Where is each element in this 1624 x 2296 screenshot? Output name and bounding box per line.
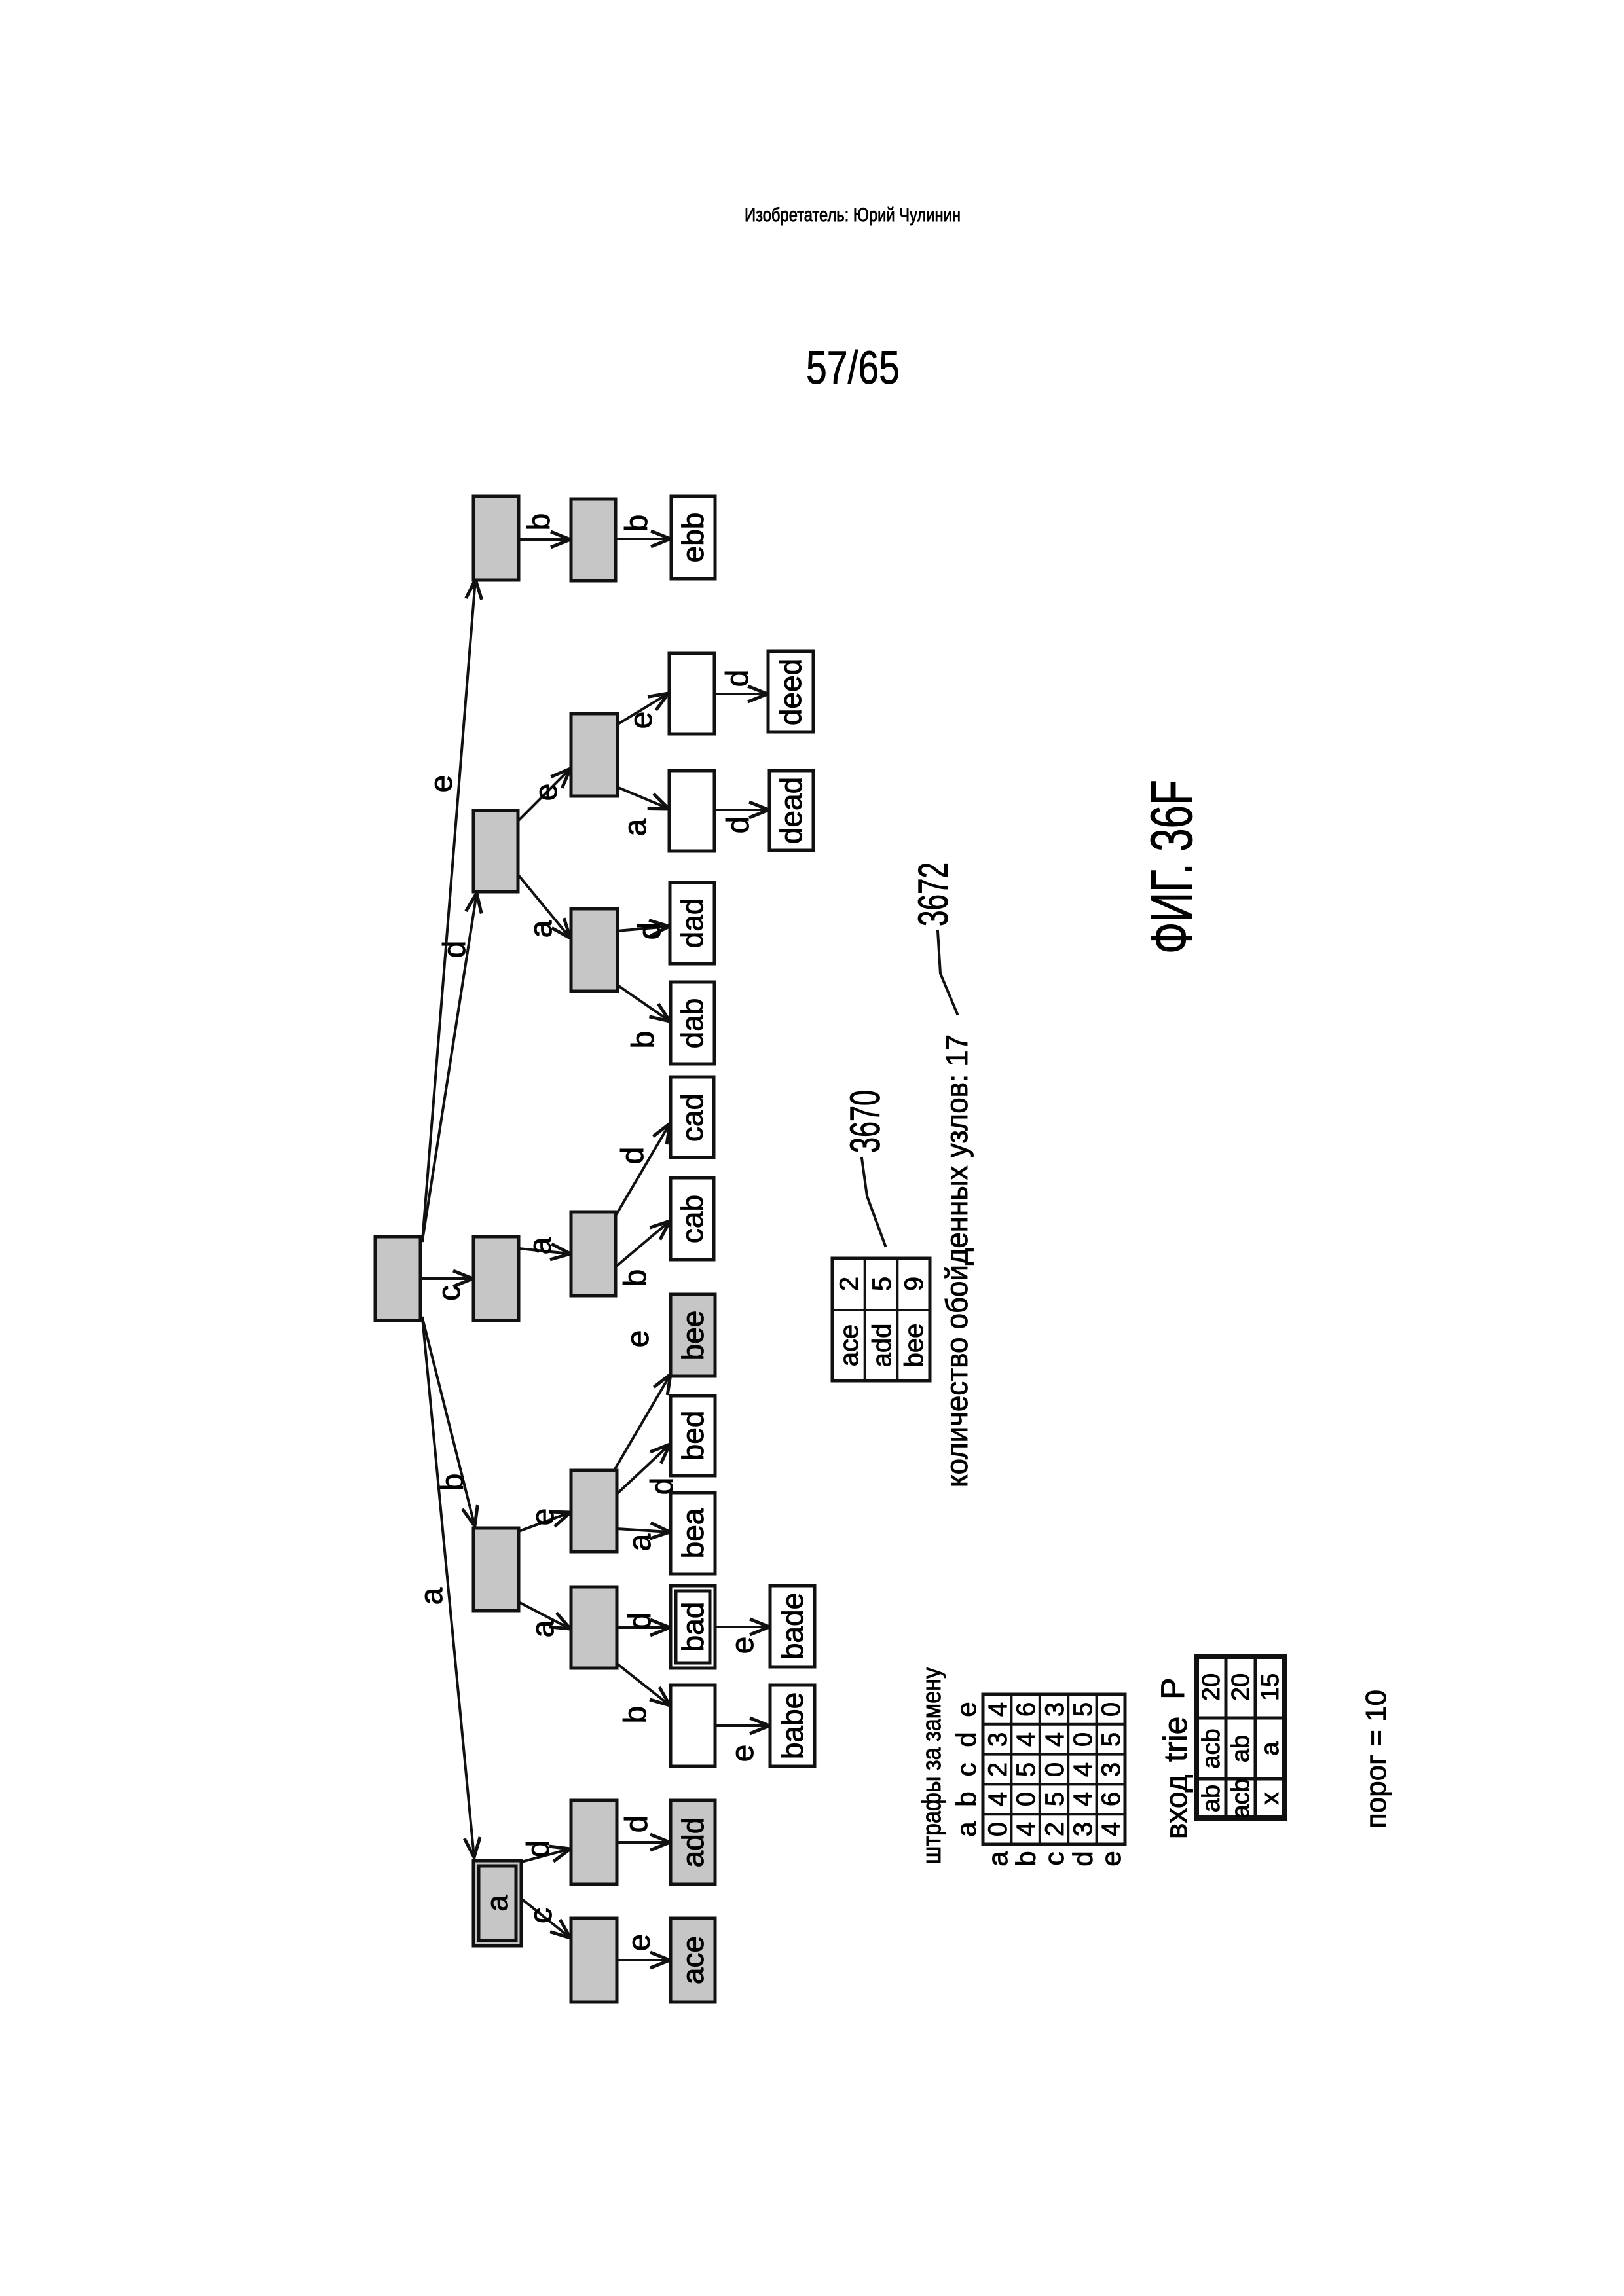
svg-text:trie: trie	[1157, 1717, 1194, 1762]
svg-text:d: d	[616, 1147, 650, 1165]
svg-text:bea: bea	[676, 1508, 710, 1558]
svg-text:0: 0	[984, 1822, 1012, 1836]
svg-text:0: 0	[1012, 1792, 1041, 1806]
svg-text:a: a	[618, 818, 653, 836]
svg-text:3: 3	[984, 1732, 1012, 1747]
svg-text:bed: bed	[676, 1411, 710, 1461]
svg-text:c: c	[1039, 1852, 1069, 1866]
svg-text:bee: bee	[900, 1324, 929, 1368]
svg-text:a: a	[982, 1851, 1013, 1867]
svg-text:ace: ace	[835, 1324, 864, 1367]
svg-text:x: x	[1257, 1793, 1284, 1805]
svg-text:d: d	[437, 941, 472, 958]
svg-text:e: e	[424, 775, 459, 793]
svg-text:4: 4	[1097, 1822, 1126, 1836]
svg-text:b: b	[618, 1269, 653, 1287]
svg-text:20: 20	[1227, 1673, 1255, 1701]
svg-text:a: a	[480, 1895, 514, 1912]
svg-text:ФИГ. 36F: ФИГ. 36F	[1139, 780, 1205, 954]
svg-text:2: 2	[1041, 1822, 1069, 1836]
svg-text:3: 3	[1097, 1762, 1126, 1777]
svg-text:0: 0	[1069, 1732, 1098, 1747]
svg-text:add: add	[868, 1324, 896, 1368]
svg-text:ebb: ebb	[676, 513, 710, 563]
svg-text:b: b	[619, 515, 654, 532]
svg-text:a: a	[951, 1821, 982, 1837]
svg-text:cad: cad	[675, 1093, 709, 1142]
svg-text:штрафы за замену: штрафы за замену	[917, 1667, 946, 1864]
svg-text:d: d	[720, 670, 755, 687]
svg-text:5: 5	[1012, 1762, 1041, 1777]
svg-text:4: 4	[984, 1792, 1012, 1806]
svg-text:c: c	[432, 1285, 467, 1301]
svg-text:e: e	[529, 784, 564, 801]
svg-text:количество обойденных узлов: 1: количество обойденных узлов: 17	[940, 1034, 974, 1487]
svg-text:0: 0	[1097, 1702, 1126, 1717]
svg-text:4: 4	[1069, 1792, 1098, 1806]
svg-text:e: e	[622, 1934, 657, 1952]
svg-text:3: 3	[1069, 1822, 1098, 1836]
svg-text:e: e	[624, 712, 659, 729]
svg-text:a: a	[415, 1587, 449, 1605]
svg-text:d: d	[1067, 1851, 1098, 1866]
svg-text:d: d	[721, 816, 756, 834]
svg-text:Изобретатель: Юрий Чулинин: Изобретатель: Юрий Чулинин	[745, 204, 961, 226]
svg-text:e: e	[526, 1508, 561, 1526]
svg-text:e: e	[1096, 1851, 1126, 1866]
svg-text:3670: 3670	[841, 1090, 889, 1153]
svg-text:e: e	[726, 1637, 760, 1654]
svg-text:b: b	[626, 1031, 661, 1049]
svg-text:c: c	[951, 1763, 982, 1777]
svg-text:cab: cab	[675, 1195, 709, 1243]
svg-text:d: d	[619, 1815, 654, 1833]
svg-text:0: 0	[1041, 1762, 1069, 1777]
svg-text:4: 4	[1012, 1822, 1041, 1836]
svg-text:d: d	[633, 922, 667, 940]
svg-text:b: b	[1010, 1851, 1041, 1866]
svg-text:d: d	[951, 1732, 982, 1747]
svg-text:e: e	[951, 1702, 982, 1717]
svg-text:bade: bade	[775, 1593, 809, 1660]
svg-text:5: 5	[1041, 1792, 1069, 1806]
svg-text:порог = 10: порог = 10	[1360, 1690, 1392, 1829]
svg-text:ace: ace	[676, 1936, 710, 1984]
svg-text:57/65: 57/65	[806, 342, 900, 394]
svg-text:4: 4	[1041, 1732, 1069, 1747]
svg-text:5: 5	[868, 1277, 896, 1291]
svg-text:dad: dad	[675, 898, 709, 949]
svg-text:e: e	[726, 1745, 760, 1762]
svg-text:4: 4	[984, 1702, 1012, 1717]
svg-text:dab: dab	[675, 998, 709, 1049]
svg-text:babe: babe	[775, 1692, 809, 1759]
svg-text:bee: bee	[676, 1311, 710, 1361]
svg-text:b: b	[951, 1791, 982, 1806]
svg-text:b: b	[522, 513, 557, 531]
svg-text:a: a	[526, 1620, 561, 1637]
svg-text:5: 5	[1069, 1702, 1098, 1717]
svg-text:2: 2	[835, 1277, 864, 1291]
svg-text:ab: ab	[1227, 1735, 1255, 1762]
svg-text:add: add	[676, 1817, 710, 1868]
svg-text:b: b	[435, 1474, 470, 1491]
svg-text:15: 15	[1257, 1673, 1284, 1701]
svg-text:e: e	[621, 1330, 655, 1348]
svg-text:ab: ab	[1198, 1785, 1225, 1812]
svg-text:acb: acb	[1198, 1728, 1225, 1768]
svg-text:6: 6	[1097, 1792, 1126, 1806]
svg-text:3672: 3672	[910, 862, 957, 926]
svg-text:dead: dead	[774, 777, 808, 844]
svg-text:вход: вход	[1159, 1775, 1193, 1839]
svg-text:a: a	[1257, 1741, 1284, 1756]
svg-text:b: b	[618, 1706, 653, 1724]
svg-text:P: P	[1154, 1677, 1191, 1699]
svg-text:deed: deed	[773, 659, 807, 725]
svg-text:a: a	[523, 1237, 558, 1254]
svg-text:bad: bad	[676, 1602, 710, 1652]
svg-text:a: a	[623, 1533, 657, 1551]
svg-text:d: d	[521, 1840, 556, 1858]
svg-text:acb: acb	[1227, 1778, 1255, 1818]
svg-text:6: 6	[1012, 1702, 1041, 1717]
svg-text:a: a	[524, 920, 559, 938]
svg-text:9: 9	[900, 1277, 929, 1291]
svg-text:4: 4	[1012, 1732, 1041, 1747]
svg-text:c: c	[524, 1908, 559, 1923]
svg-text:5: 5	[1097, 1732, 1126, 1747]
svg-text:d: d	[623, 1613, 657, 1630]
svg-text:3: 3	[1041, 1702, 1069, 1717]
svg-text:4: 4	[1069, 1762, 1098, 1777]
svg-text:2: 2	[984, 1762, 1012, 1777]
svg-text:20: 20	[1198, 1673, 1225, 1701]
